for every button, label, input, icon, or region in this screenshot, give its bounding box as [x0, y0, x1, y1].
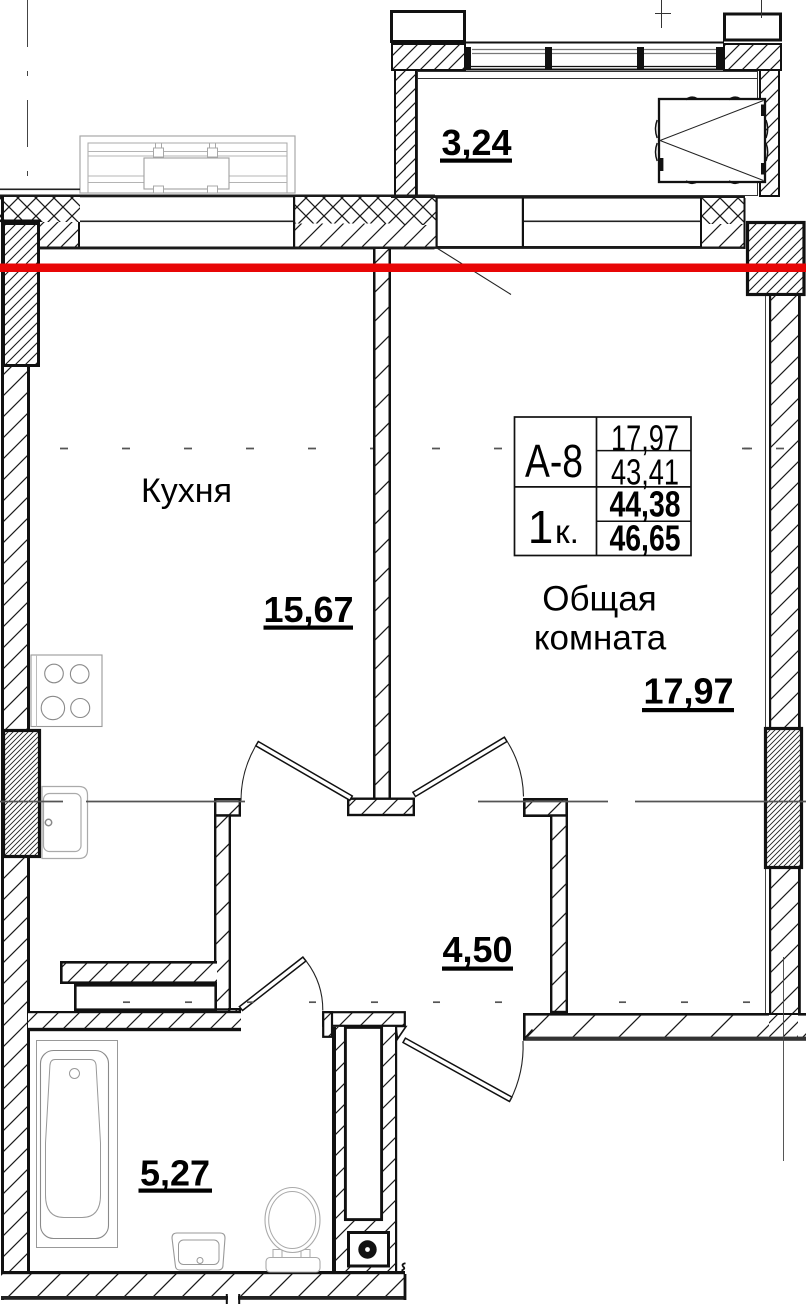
svg-text:46,65: 46,65 [610, 518, 681, 559]
svg-text:17,97: 17,97 [643, 671, 733, 712]
svg-text:А-8: А-8 [525, 435, 583, 487]
svg-text:Общая: Общая [542, 580, 657, 619]
svg-text:комната: комната [534, 619, 667, 658]
svg-text:к.: к. [555, 513, 579, 550]
svg-text:1: 1 [528, 501, 554, 553]
svg-text:15,67: 15,67 [263, 589, 353, 630]
svg-text:5,27: 5,27 [140, 1153, 210, 1194]
svg-text:3,24: 3,24 [441, 122, 511, 163]
svg-text:Кухня: Кухня [141, 472, 232, 510]
svg-text:4,50: 4,50 [442, 929, 512, 970]
